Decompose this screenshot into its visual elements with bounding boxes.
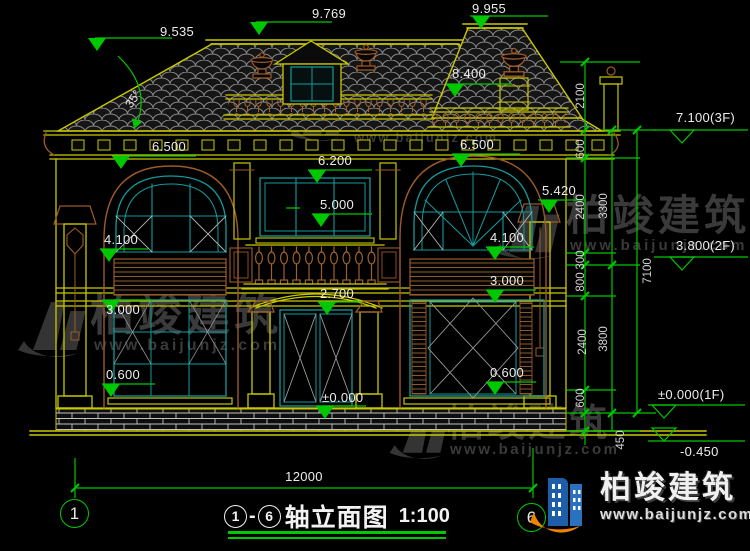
- level-label-8400: 8.400: [452, 66, 486, 81]
- balcony: [230, 245, 400, 289]
- dim-3300: 3300: [598, 184, 610, 228]
- door-x-panes: [284, 314, 352, 402]
- title-name: 轴立面图: [285, 498, 389, 534]
- dim-3800: 3800: [598, 317, 610, 361]
- title-axis-from: 1: [224, 505, 247, 528]
- level-label-6500-left: 6.500: [152, 139, 186, 154]
- dim-12000: 12000: [254, 469, 354, 484]
- title-scale: 1:100: [399, 505, 450, 528]
- drawing-title: 1 - 6 轴立面图 1:100: [224, 498, 450, 534]
- dim-600-a: 600: [575, 127, 587, 171]
- right-bay: [400, 156, 550, 408]
- level-label-4100-left: 4.100: [104, 232, 138, 247]
- level-label-6500-right: 6.500: [460, 137, 494, 152]
- dim-2400-a: 2400: [575, 185, 587, 229]
- dim-600-b: 600: [575, 376, 587, 420]
- brand-logo-icon: [528, 470, 594, 542]
- level-label-9769: 9.769: [312, 6, 346, 21]
- dim-800: 800: [575, 260, 587, 304]
- brand-logo-name: 柏竣建筑: [600, 470, 750, 506]
- watermark-url: www.baijunjz.com: [449, 441, 619, 458]
- brand-logo-url: www.baijunjz.com: [600, 506, 750, 523]
- dim-7100: 7100: [642, 249, 654, 293]
- level-label-9535: 9.535: [160, 24, 194, 39]
- brand-logo: 柏竣建筑 www.baijunjz.com: [528, 470, 750, 542]
- level-label-9955: 9.955: [472, 1, 506, 16]
- level-label-m450: -0.450: [680, 444, 719, 459]
- window-sill: [256, 238, 374, 243]
- diamond-pane: [428, 298, 518, 398]
- dim-2100: 2100: [575, 74, 587, 118]
- level-label-2700: 2.700: [320, 286, 354, 301]
- dim-2400-b: 2400: [577, 320, 589, 364]
- axis-bubble-1: 1: [60, 499, 89, 528]
- title-underline-2: [228, 537, 446, 539]
- floor-label-3f: 7.100(3F): [676, 110, 735, 125]
- center-second-floor: [230, 163, 400, 289]
- title-dash: -: [249, 505, 256, 528]
- level-label-0000: ±0.000: [322, 390, 363, 405]
- window-sill: [108, 398, 232, 404]
- level-label-3000-left: 3.000: [106, 302, 140, 317]
- dim-450: 450: [615, 418, 627, 462]
- floor-label-1f: ±0.000(1F): [658, 387, 725, 402]
- elevation-drawing: 柏竣建筑 www.baijunjz.com 柏竣建筑 www.baijunjz.…: [0, 0, 750, 551]
- level-label-5000: 5.000: [320, 197, 354, 212]
- level-label-0600-right: 0.600: [490, 365, 524, 380]
- level-label-3000-right: 3.000: [490, 273, 524, 288]
- level-label-6200: 6.200: [318, 153, 352, 168]
- title-underline-1: [228, 531, 446, 534]
- shield-ornament: [67, 228, 83, 254]
- floor-label-2f: 3.800(2F): [676, 238, 735, 253]
- level-label-5420: 5.420: [542, 183, 576, 198]
- eave-pillar: [600, 67, 622, 130]
- cad-elevation-screenshot: 柏竣建筑 www.baijunjz.com 柏竣建筑 www.baijunjz.…: [0, 0, 750, 551]
- level-label-4100-right: 4.100: [490, 230, 524, 245]
- watermark-brand: 柏竣建筑: [566, 192, 750, 239]
- left-louver-band: [114, 259, 226, 295]
- level-label-0600-left: 0.600: [106, 367, 140, 382]
- title-axis-to: 6: [258, 505, 281, 528]
